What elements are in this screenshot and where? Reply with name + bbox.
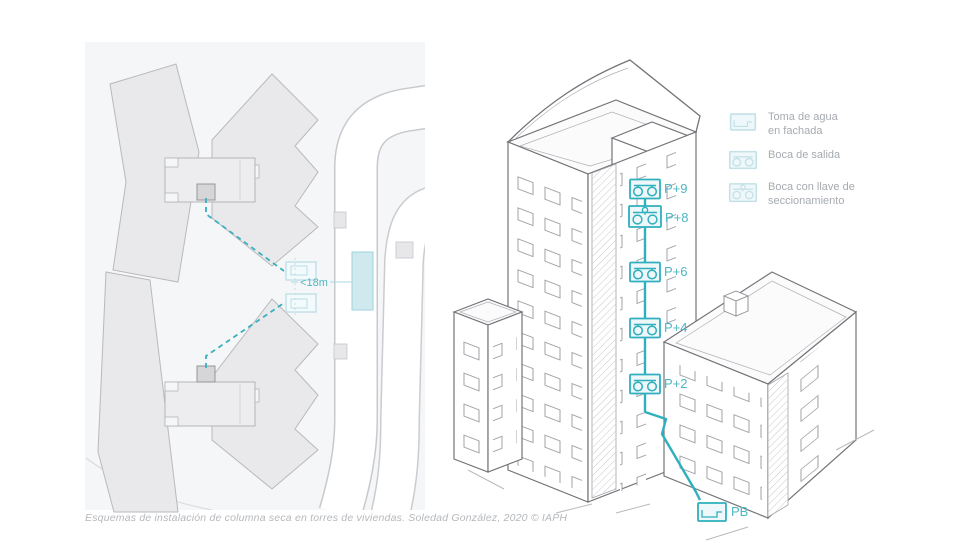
legend-item-boca-de-salida: Boca de salida bbox=[728, 148, 855, 171]
floor-label: P+6 bbox=[664, 264, 688, 279]
toma-de-agua-icon bbox=[728, 111, 758, 133]
legend-label: seccionamiento bbox=[768, 194, 855, 208]
screenshot-root: <18m bbox=[0, 0, 980, 560]
riser-shaft-mark bbox=[197, 366, 215, 382]
road-mark bbox=[396, 242, 413, 258]
floor-marker-p8: P+8 bbox=[629, 206, 689, 227]
legend-item-toma-de-agua: Toma de agua en fachada bbox=[728, 110, 855, 139]
floor-label: P+8 bbox=[665, 210, 689, 225]
floor-label: P+9 bbox=[664, 181, 688, 196]
floor-marker-p2: P+2 bbox=[630, 375, 688, 394]
riser-shaft-mark bbox=[197, 184, 215, 200]
corner-glazing-strip bbox=[768, 373, 788, 517]
legend-label: Toma de agua bbox=[768, 110, 838, 124]
roof-chimney bbox=[724, 291, 748, 316]
diagram-canvas: <18m bbox=[0, 0, 980, 560]
fire-truck-bay bbox=[352, 252, 373, 310]
boca-de-salida-icon bbox=[630, 180, 660, 199]
boca-de-salida-icon bbox=[630, 375, 660, 394]
floor-label: P+2 bbox=[664, 376, 688, 391]
legend: Toma de agua en fachada Boca de salida B… bbox=[728, 110, 855, 208]
floor-label: P+4 bbox=[664, 320, 688, 335]
floor-marker-p6: P+6 bbox=[630, 263, 688, 282]
tower-left-windows bbox=[514, 158, 582, 492]
legend-label: Boca con llave de bbox=[768, 180, 855, 194]
road-mark bbox=[334, 344, 347, 359]
legend-label: Boca de salida bbox=[768, 148, 840, 162]
road-mark bbox=[334, 212, 346, 228]
distance-label: <18m bbox=[300, 277, 328, 289]
figure-caption: Esquemas de instalación de columna seca … bbox=[85, 512, 567, 524]
facade-intake-south bbox=[286, 294, 316, 312]
legend-label: en fachada bbox=[768, 124, 838, 138]
floor-marker-pb: PB bbox=[698, 503, 748, 521]
toma-de-agua-icon bbox=[698, 503, 726, 521]
stair-glazing-strip bbox=[592, 164, 616, 498]
boca-de-salida-icon bbox=[630, 263, 660, 282]
tower-footprint-north bbox=[165, 158, 255, 202]
boca-con-llave-icon bbox=[728, 181, 758, 205]
boca-de-salida-icon bbox=[728, 149, 758, 171]
legend-item-boca-con-llave: Boca con llave de seccionamiento bbox=[728, 180, 855, 209]
boca-con-llave-icon bbox=[629, 206, 661, 227]
boca-de-salida-icon bbox=[630, 319, 660, 338]
floor-marker-p9: P+9 bbox=[630, 180, 688, 199]
site-plan: <18m bbox=[85, 42, 432, 516]
floor-label: PB bbox=[731, 504, 748, 519]
floor-marker-p4: P+4 bbox=[630, 319, 688, 338]
annex-wing bbox=[454, 299, 522, 472]
